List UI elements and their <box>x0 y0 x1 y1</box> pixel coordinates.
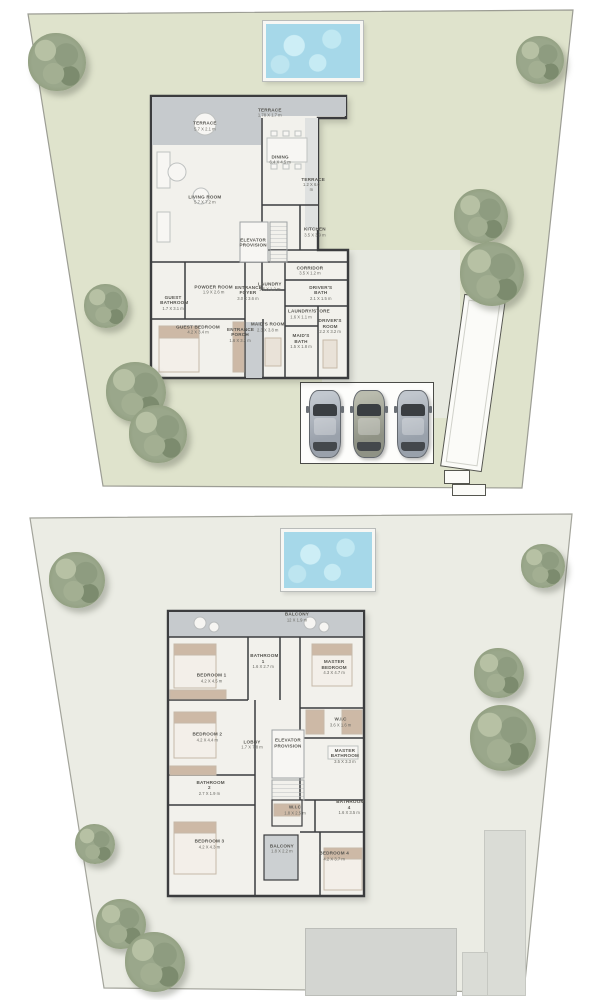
tree-icon <box>474 648 524 698</box>
tree-icon <box>460 242 524 306</box>
tree-icon <box>84 284 128 328</box>
tree-icon <box>454 189 508 243</box>
ground-floor-trees <box>0 0 600 500</box>
tree-icon <box>125 932 185 992</box>
first-floor-trees <box>0 500 600 1000</box>
tree-icon <box>129 405 187 463</box>
tree-icon <box>470 705 536 771</box>
tree-icon <box>49 552 105 608</box>
tree-icon <box>516 36 564 84</box>
tree-icon <box>75 824 115 864</box>
tree-icon <box>521 544 565 588</box>
site-plan-first-floor: BALCONY12 X 1.9 mBEDROOM 14.2 X 4.5 mBAT… <box>0 500 600 1000</box>
site-plan-ground-floor: TERRACE5.7 X 2.1 mTERRACE1.78 X 1.7 mDIN… <box>0 0 600 500</box>
tree-icon <box>28 33 86 91</box>
